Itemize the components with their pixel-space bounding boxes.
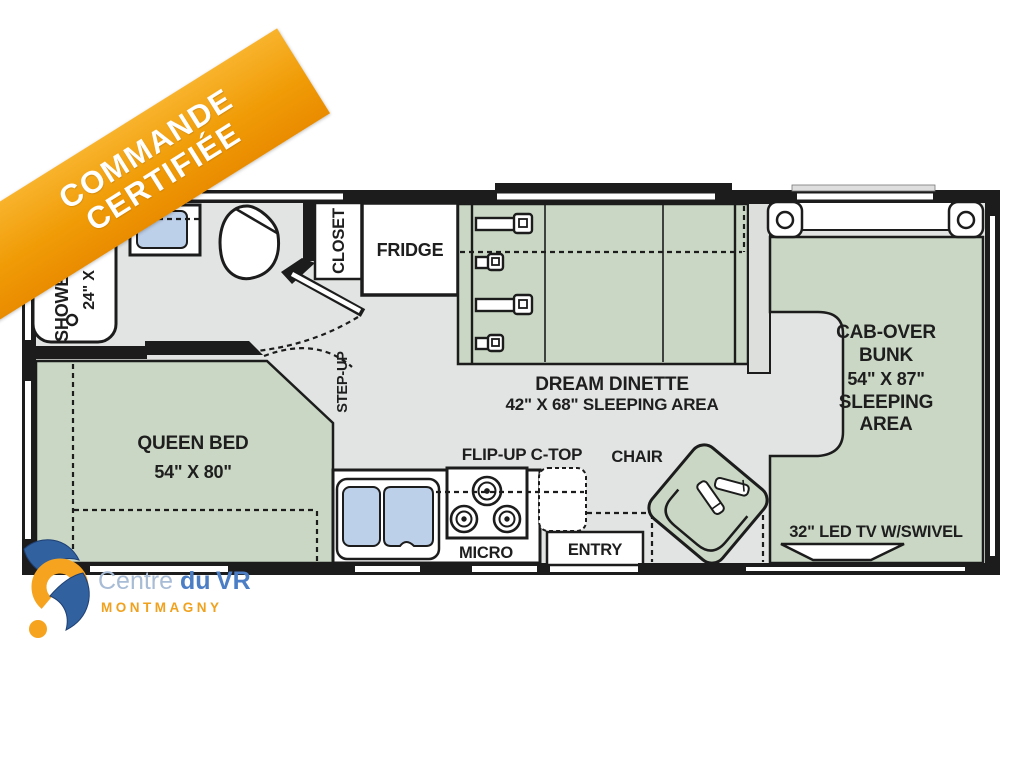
logo-swoosh-bottom xyxy=(50,573,89,630)
micro-label: MICRO xyxy=(459,544,513,562)
entry-label: ENTRY xyxy=(568,541,623,559)
cabover-label-4: SLEEPING xyxy=(839,392,933,413)
logo-name-2: du xyxy=(180,567,211,595)
entry-post xyxy=(638,563,656,575)
bunk-board xyxy=(798,202,952,230)
floorplan-page: SHOWER 24" X CLOSET FRIDGE STEP-UP xyxy=(0,0,1024,768)
awning-bar xyxy=(495,183,732,192)
closet-label: CLOSET xyxy=(330,208,348,274)
queen-bed: QUEEN BED 54" X 80" xyxy=(36,361,333,563)
logo-name-3: VR xyxy=(216,567,251,595)
step-up-label: STEP-UP xyxy=(335,351,351,413)
sink-basin-right xyxy=(384,487,433,546)
shower-dim-label: 24" X xyxy=(81,270,98,310)
flip-up-counter xyxy=(539,468,586,531)
chair-label: CHAIR xyxy=(611,448,663,466)
sink-basin-left xyxy=(343,487,380,546)
cabover-label-2: BUNK xyxy=(859,345,914,366)
cabover-label-3: 54" X 87" xyxy=(847,369,924,389)
cabover-label-5: AREA xyxy=(859,414,913,435)
logo-name-1: Centre xyxy=(98,567,173,595)
tv-label: 32" LED TV W/SWIVEL xyxy=(789,523,963,541)
flip-up-label: FLIP-UP C-TOP xyxy=(462,445,583,464)
stove xyxy=(447,468,527,538)
queen-dim-label: 54" X 80" xyxy=(154,462,231,482)
queen-label: QUEEN BED xyxy=(137,433,248,454)
logo-city: MONTMAGNY xyxy=(101,600,223,615)
dinette-label: DREAM DINETTE xyxy=(535,374,689,395)
dinette-dim-label: 42" X 68" SLEEPING AREA xyxy=(505,395,718,414)
tall-cabinet xyxy=(748,203,770,373)
windows-top xyxy=(115,194,933,200)
awning-rail xyxy=(792,185,935,191)
fridge-label: FRIDGE xyxy=(377,240,444,260)
cabover-label-1: CAB-OVER xyxy=(836,322,936,343)
logo-dot xyxy=(29,620,47,638)
